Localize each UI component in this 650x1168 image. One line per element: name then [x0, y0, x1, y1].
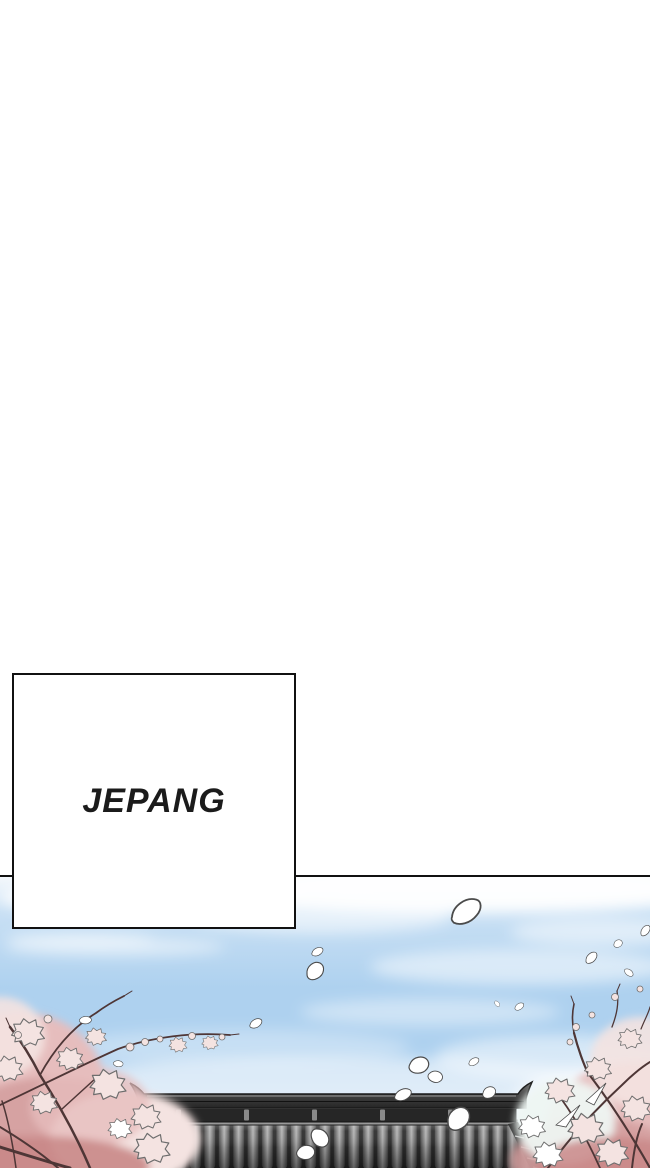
caption-box: JEPANG: [12, 673, 296, 929]
caption-label: JEPANG: [82, 782, 225, 821]
comic-page: JEPANG: [0, 0, 650, 1168]
